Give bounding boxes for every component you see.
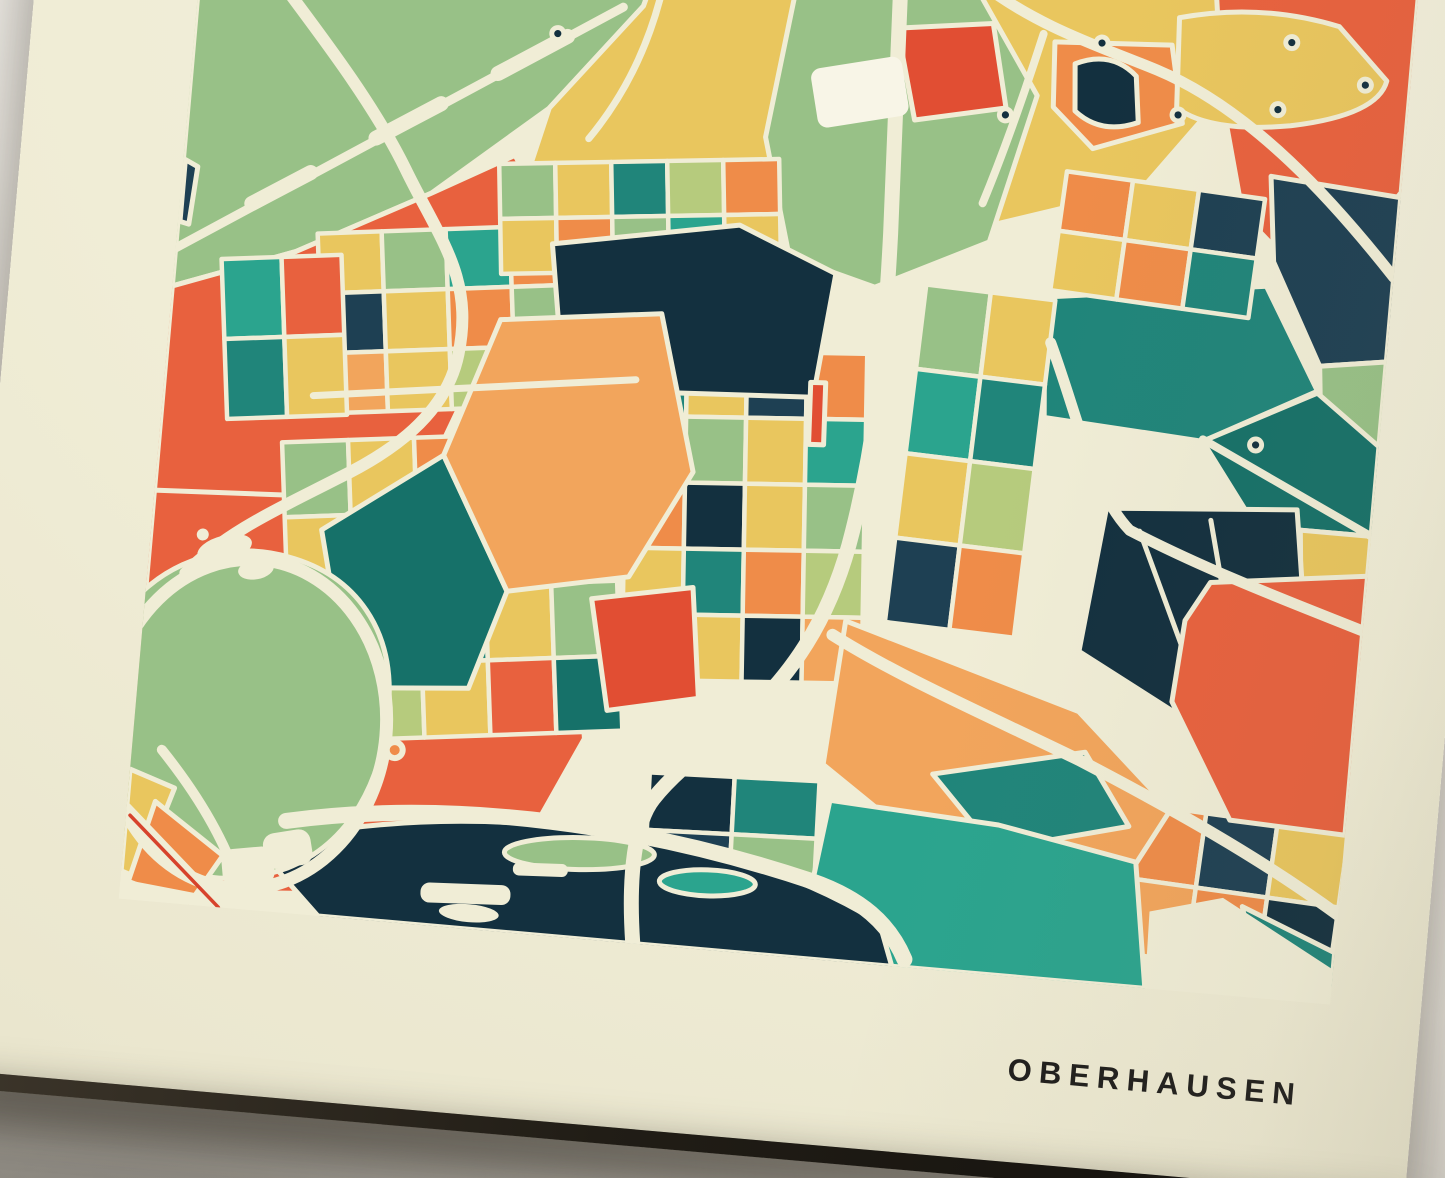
district-cell: [980, 292, 1055, 384]
district-cell: [667, 160, 724, 216]
district-cell: [1116, 240, 1190, 309]
district-cell: [500, 218, 557, 274]
district-cell: [723, 159, 780, 215]
district-cell: [970, 377, 1045, 469]
district-cell: [222, 257, 285, 339]
district-cell: [895, 453, 970, 545]
tilted-poster-wrapper: OBERHAUSEN: [0, 0, 1445, 1178]
district-cell: [684, 483, 745, 550]
district-cell: [1191, 190, 1265, 259]
city-map-artwork: [119, 0, 1420, 1005]
district-cell: [906, 369, 981, 461]
district-cell: [284, 335, 347, 417]
district-grid-northeast-infill: [1050, 171, 1265, 318]
district-cell: [384, 289, 450, 351]
district-cell: [224, 337, 287, 419]
district-cell: [885, 538, 960, 630]
district-cell: [611, 161, 668, 217]
poster: OBERHAUSEN: [0, 0, 1445, 1178]
district-cell: [1050, 231, 1124, 300]
district-cell: [916, 284, 991, 376]
district-cell: [745, 418, 806, 485]
district-cell: [744, 484, 805, 551]
district-cell: [1182, 249, 1256, 318]
city-title: OBERHAUSEN: [1006, 1052, 1303, 1114]
district-cell: [960, 461, 1035, 553]
river-island: [420, 882, 511, 905]
district-cell: [1059, 171, 1133, 240]
photo-backdrop: OBERHAUSEN: [0, 0, 1445, 1178]
river-island: [513, 862, 568, 877]
district-cell: [282, 255, 345, 337]
district-cell: [743, 550, 804, 617]
district-cell: [732, 777, 820, 839]
district-cell: [555, 162, 612, 218]
district-cell: [949, 546, 1024, 638]
district-cell: [499, 163, 556, 219]
district-cell: [1125, 181, 1199, 250]
district-cell: [488, 658, 557, 735]
